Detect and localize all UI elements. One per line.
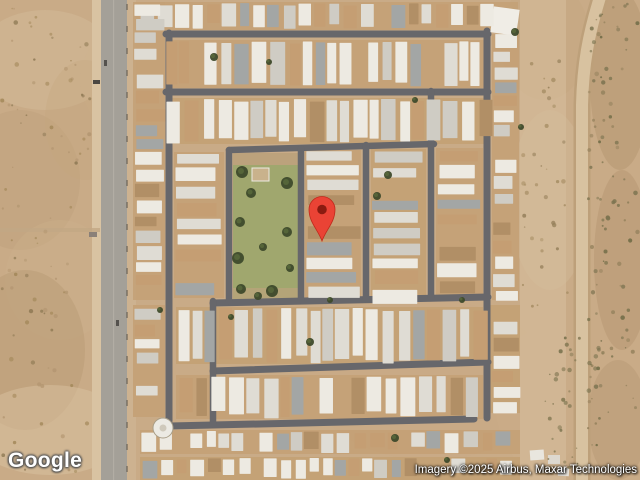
map-viewport[interactable]: Google Imagery ©2025 Airbus, Maxar Techn… xyxy=(0,0,640,480)
location-pin[interactable] xyxy=(305,193,339,243)
pin-body-shape xyxy=(309,197,335,242)
google-logo[interactable]: Google xyxy=(8,449,82,473)
imagery-attribution: Imagery ©2025 Airbus, Maxar Technologies xyxy=(415,464,637,476)
pin-center-dot xyxy=(317,205,327,215)
